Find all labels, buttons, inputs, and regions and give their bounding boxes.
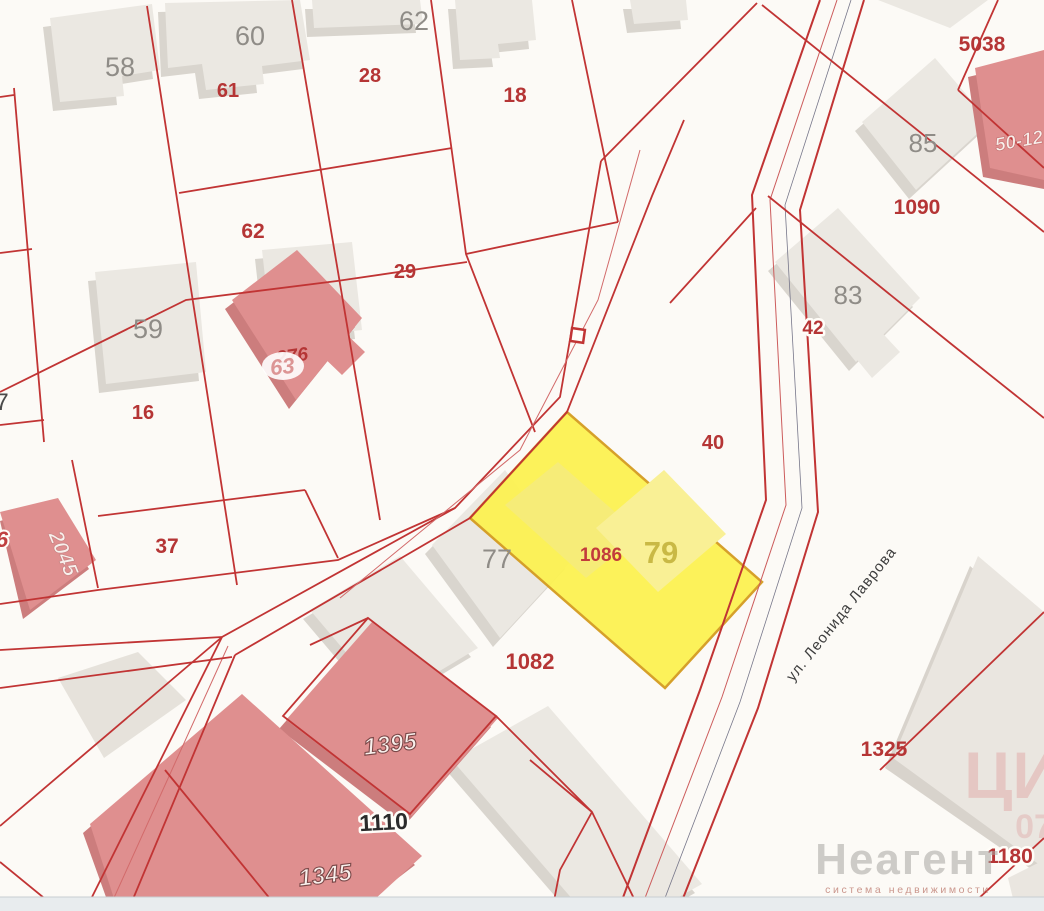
- building-label-59: 59: [133, 314, 163, 344]
- building-label-77: 77: [482, 544, 512, 574]
- building-label-7: 7: [0, 389, 9, 416]
- parcel-label-1325: 1325: [861, 738, 908, 761]
- parcel-label-1082: 1082: [506, 649, 555, 674]
- parcel-label-42: 42: [802, 318, 823, 339]
- watermark-subtitle: система недвижимости: [825, 884, 991, 896]
- bottom-strip: [0, 897, 1044, 911]
- parcel-label-37: 37: [155, 535, 178, 558]
- house-label-6: 6: [0, 527, 9, 552]
- cadastral-map-canvas[interactable]: 58 60 62 59 77 83 85 7 61 28 18 62 29 16…: [0, 0, 1044, 911]
- parcel-label-5038: 5038: [959, 33, 1006, 56]
- house-label-1110: 1110: [359, 808, 409, 837]
- watermark-title: Неагент: [815, 835, 1001, 884]
- parcel-label-62: 62: [241, 220, 264, 243]
- selected-building-number: 79: [644, 535, 678, 570]
- building-label-83: 83: [834, 280, 863, 310]
- parcel-label-40: 40: [702, 432, 724, 454]
- parcel-label-61: 61: [217, 80, 239, 102]
- parcel-label-28: 28: [359, 65, 381, 87]
- house-label-63: 63: [269, 353, 296, 380]
- square-poi-marker[interactable]: [570, 328, 585, 343]
- building-label-62: 62: [399, 6, 429, 36]
- parcel-label-16: 16: [132, 402, 154, 424]
- parcel-label-18: 18: [503, 84, 527, 107]
- building-label-60: 60: [235, 21, 265, 51]
- selected-parcel-number: 1086: [580, 545, 622, 566]
- watermark-corner-letters: ЦИ: [964, 738, 1044, 812]
- watermark-corner-digits: 07: [1015, 808, 1044, 846]
- parcel-label-29: 29: [394, 261, 416, 283]
- building-label-85: 85: [909, 128, 938, 158]
- parcel-label-1090: 1090: [894, 196, 941, 219]
- building-label-58: 58: [105, 52, 135, 82]
